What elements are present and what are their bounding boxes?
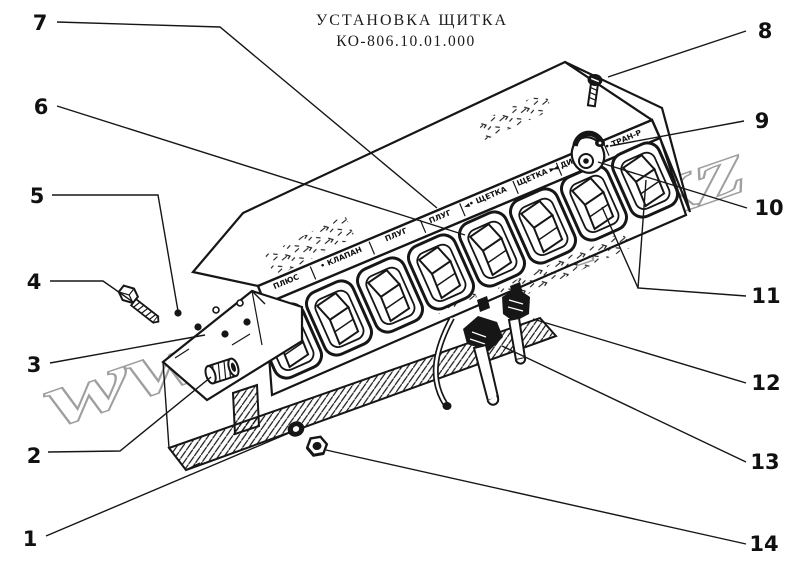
callout-6: 6 [34,95,49,119]
leader-1 [46,433,289,536]
callout-5: 5 [30,184,45,208]
callout-10: 10 [754,196,783,220]
callout-4: 4 [27,270,42,294]
leader-14 [326,450,746,544]
callout-14: 14 [749,532,778,556]
diagram-page: www.sinref.kz УСТАНОВКА ЩИТКА КО-806.10.… [0,0,800,582]
callout-11: 11 [751,284,780,308]
drawing-number: КО-806.10.01.000 [336,33,475,50]
callout-2: 2 [27,444,42,468]
hex-nut [306,436,329,456]
hex-bolt [116,282,165,325]
callout-7: 7 [33,11,48,35]
panel-assembly: ПЛЮС • КЛАПАН ПЛУГ ПЛУГ ◄• ЩЕТКА ЩЕТКА ►… [116,62,690,470]
callout-1: 1 [23,527,38,551]
callout-13: 13 [750,450,779,474]
callout-12: 12 [751,371,780,395]
title-block: УСТАНОВКА ЩИТКА КО-806.10.01.000 [316,12,508,50]
flange-lip [233,385,259,434]
leader-5 [52,195,178,311]
callout-3: 3 [27,353,42,377]
leader-12 [533,319,746,383]
leader-13 [502,346,746,462]
parts-diagram: www.sinref.kz УСТАНОВКА ЩИТКА КО-806.10.… [0,0,800,582]
callout-8: 8 [758,19,773,43]
drawing-title: УСТАНОВКА ЩИТКА [316,12,508,29]
leader-8 [608,31,746,77]
callout-9: 9 [755,109,770,133]
